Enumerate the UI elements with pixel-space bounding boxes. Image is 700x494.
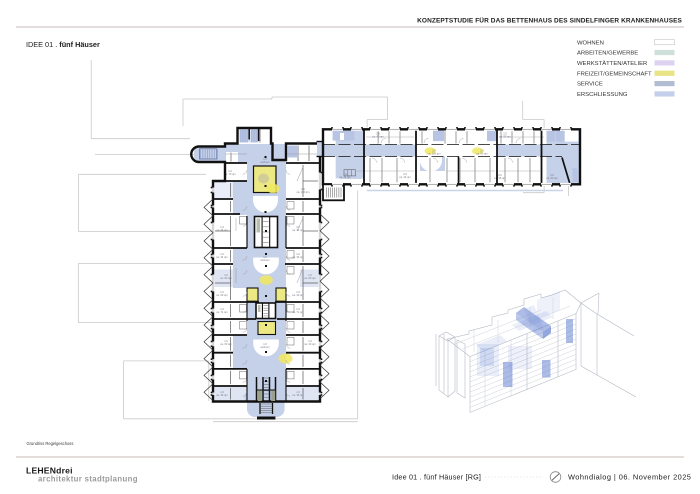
svg-text:wohnen: wohnen [260, 345, 270, 349]
svg-text:ca. 34 qm: ca. 34 qm [216, 228, 227, 232]
svg-text:Wohndialog | 06. November 2025: Wohndialog | 06. November 2025 [568, 473, 691, 482]
svg-text:ca. 44 qm: ca. 44 qm [399, 175, 410, 179]
svg-text:FREIZEIT/GEMEINSCHAFT: FREIZEIT/GEMEINSCHAFT [577, 71, 652, 77]
svg-text:ca. 40 qm: ca. 40 qm [292, 293, 303, 297]
svg-text:ca. 34 qm: ca. 34 qm [216, 255, 227, 259]
svg-text:architektur stadtplanung: architektur stadtplanung [38, 475, 138, 484]
svg-text:wohnen: wohnen [260, 258, 270, 262]
svg-text:wohnen: wohnen [260, 160, 270, 164]
svg-text:ca. 80 qm: ca. 80 qm [499, 135, 510, 139]
svg-text:ca. 36 qm: ca. 36 qm [216, 393, 227, 397]
svg-text:Grundriss Regelgeschoss: Grundriss Regelgeschoss [27, 441, 74, 446]
svg-text:ca. 60 qm: ca. 60 qm [220, 342, 231, 346]
svg-text:Idee 01 . fünf Häuser [RG]: Idee 01 . fünf Häuser [RG] [392, 473, 481, 482]
svg-text:ca. 71 qm: ca. 71 qm [216, 310, 227, 314]
svg-text:ca. 60 qm: ca. 60 qm [216, 293, 227, 297]
svg-text:ca. 40 qm: ca. 40 qm [304, 342, 315, 346]
svg-text:ca. 40 qm: ca. 40 qm [372, 135, 383, 139]
svg-text:ca. 60 qm: ca. 60 qm [220, 276, 231, 280]
svg-text:ca. 34 qm: ca. 34 qm [292, 228, 303, 232]
svg-text:IDEE 01 . fünf Häuser: IDEE 01 . fünf Häuser [26, 40, 100, 49]
svg-text:ARBEITEN/GEWERBE: ARBEITEN/GEWERBE [577, 51, 638, 57]
svg-text:ca. 60 qm: ca. 60 qm [304, 276, 315, 280]
svg-text:SERVICE: SERVICE [577, 82, 603, 88]
svg-text:ca. 80 qm: ca. 80 qm [476, 152, 487, 156]
svg-text:KONZEPTSTUDIE FÜR DAS BETTENHA: KONZEPTSTUDIE FÜR DAS BETTENHAUS DES SIN… [417, 15, 682, 24]
svg-text:ca. 44 qm: ca. 44 qm [339, 175, 350, 179]
svg-text:WERKSTÄTTEN/ATELIER: WERKSTÄTTEN/ATELIER [577, 60, 647, 67]
svg-text:ca. 100 qm: ca. 100 qm [428, 152, 441, 156]
svg-text:ca. 100 qm: ca. 100 qm [297, 190, 310, 194]
svg-text:WOHNEN: WOHNEN [577, 40, 604, 46]
svg-text:ERSCHLIESSUNG: ERSCHLIESSUNG [577, 92, 628, 98]
svg-text:ca. 36 qm: ca. 36 qm [292, 393, 303, 397]
svg-text:ca. 50 qm: ca. 50 qm [546, 176, 557, 180]
svg-text:ca. 36 qm: ca. 36 qm [494, 176, 505, 180]
